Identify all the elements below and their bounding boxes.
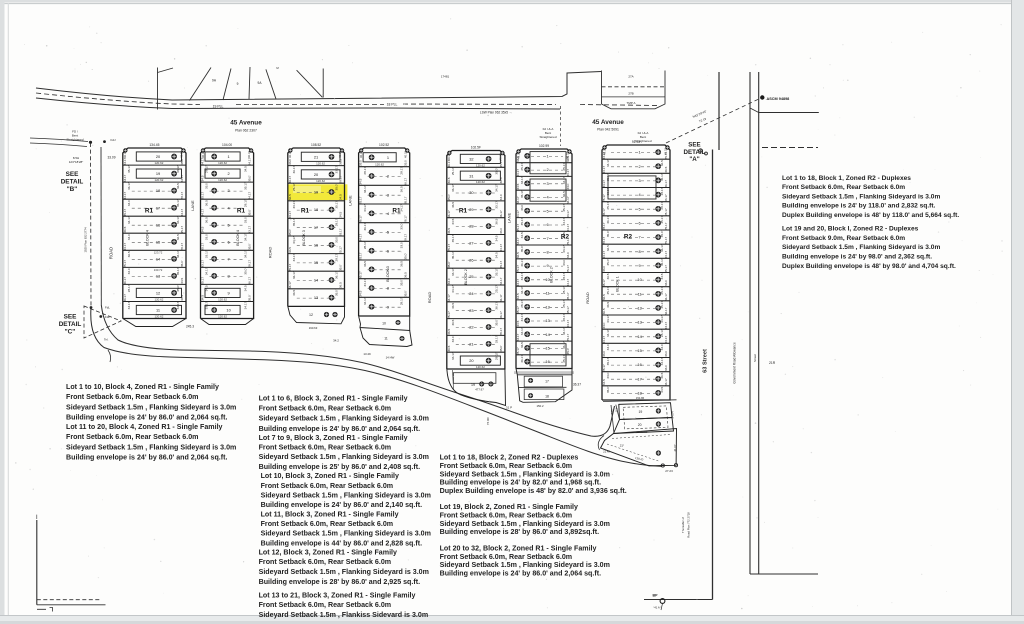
svg-text:25.17: 25.17 bbox=[201, 277, 205, 285]
svg-text:35.0′: 35.0′ bbox=[447, 194, 451, 201]
svg-text:33.0: 33.0 bbox=[606, 344, 610, 350]
svg-text:BLOCK 4: BLOCK 4 bbox=[236, 230, 240, 246]
svg-text:LANE: LANE bbox=[190, 200, 195, 211]
svg-text:21R: 21R bbox=[769, 361, 776, 365]
svg-text:35.17: 35.17 bbox=[602, 279, 606, 287]
svg-text:33.0: 33.0 bbox=[205, 234, 209, 240]
svg-text:33.17: 33.17 bbox=[339, 228, 343, 236]
svg-text:Sideyard Setback 1.5m , Flanki: Sideyard Setback 1.5m , Flanking Sideyar… bbox=[259, 568, 429, 576]
svg-text:6: 6 bbox=[639, 221, 641, 226]
svg-text:25.17: 25.17 bbox=[451, 167, 455, 175]
svg-text:28.17: 28.17 bbox=[180, 243, 184, 251]
svg-text:Front Setback 6.0m, Rear Setba: Front Setback 6.0m, Rear Setback 6.0m bbox=[261, 520, 393, 528]
svg-text:1920 Plan 832 2774: 1920 Plan 832 2774 bbox=[84, 227, 88, 252]
svg-text:Tel.: Tel. bbox=[104, 338, 109, 342]
svg-text:LANE: LANE bbox=[507, 212, 512, 223]
svg-text:1: 1 bbox=[639, 150, 641, 155]
svg-text:R1: R1 bbox=[459, 208, 468, 215]
svg-text:36.5: 36.5 bbox=[404, 272, 408, 278]
svg-text:34.84: 34.84 bbox=[671, 411, 675, 418]
svg-text:36.5: 36.5 bbox=[205, 200, 209, 206]
svg-text:15: 15 bbox=[314, 260, 318, 265]
svg-text:34.17: 34.17 bbox=[201, 157, 205, 165]
svg-text:8: 8 bbox=[639, 249, 641, 254]
svg-text:9: 9 bbox=[639, 263, 641, 268]
svg-text:FdL: FdL bbox=[105, 306, 110, 310]
svg-text:76 RF: 76 RF bbox=[486, 417, 490, 425]
svg-text:Building envelope is 24' by 86: Building envelope is 24' by 86.0' and 2,… bbox=[66, 414, 227, 422]
svg-text:123.72: 123.72 bbox=[154, 251, 163, 255]
svg-text:25.17: 25.17 bbox=[664, 236, 668, 244]
svg-text:BLOCK 3: BLOCK 3 bbox=[386, 266, 390, 282]
svg-text:123°18'28": 123°18'28" bbox=[69, 160, 84, 164]
svg-text:33.17: 33.17 bbox=[516, 196, 520, 204]
svg-text:34.5: 34.5 bbox=[516, 320, 520, 326]
svg-text:18: 18 bbox=[156, 188, 160, 193]
svg-text:34.5: 34.5 bbox=[243, 285, 247, 291]
svg-text:36.5: 36.5 bbox=[400, 261, 404, 267]
svg-text:34.17: 34.17 bbox=[127, 216, 131, 224]
svg-text:25.17: 25.17 bbox=[359, 252, 363, 260]
svg-text:Sideyard Setback 1.5m , Flanki: Sideyard Setback 1.5m , Flanking Sideyar… bbox=[440, 470, 610, 478]
svg-text:33.0: 33.0 bbox=[606, 372, 610, 378]
svg-text:33.17: 33.17 bbox=[520, 176, 524, 184]
svg-text:34.5: 34.5 bbox=[201, 175, 205, 181]
svg-text:6: 6 bbox=[547, 222, 549, 227]
svg-text:3: 3 bbox=[547, 181, 549, 186]
svg-text:120.62: 120.62 bbox=[218, 161, 227, 165]
svg-text:33.0: 33.0 bbox=[451, 336, 455, 342]
svg-text:35.0′: 35.0′ bbox=[248, 294, 252, 301]
svg-text:17: 17 bbox=[637, 376, 641, 381]
svg-text:35.17: 35.17 bbox=[516, 224, 520, 232]
svg-text:35.0′: 35.0′ bbox=[404, 290, 408, 297]
svg-text:28.17: 28.17 bbox=[404, 234, 408, 242]
svg-text:35.0′: 35.0′ bbox=[520, 245, 524, 252]
svg-text:Building envelope is 24' by 11: Building envelope is 24' by 118.0' and 2… bbox=[782, 203, 936, 210]
svg-text:1: 1 bbox=[387, 155, 389, 160]
svg-text:35.0′: 35.0′ bbox=[606, 230, 610, 237]
svg-text:36.5: 36.5 bbox=[292, 290, 296, 296]
svg-text:40.32: 40.32 bbox=[123, 150, 127, 158]
svg-text:40.32: 40.32 bbox=[447, 153, 451, 161]
svg-text:41.07: 41.07 bbox=[673, 444, 677, 451]
svg-text:18: 18 bbox=[314, 207, 318, 212]
svg-text:34.5: 34.5 bbox=[359, 290, 363, 296]
svg-text:36.17: 36.17 bbox=[359, 215, 363, 223]
svg-text:34.5: 34.5 bbox=[201, 226, 205, 232]
svg-text:33.17: 33.17 bbox=[180, 208, 184, 216]
svg-text:33.17: 33.17 bbox=[495, 201, 499, 209]
svg-text:34.17: 34.17 bbox=[243, 250, 247, 258]
svg-text:34.17: 34.17 bbox=[606, 315, 610, 323]
svg-text:Sideyard Setback 1.5m , Flanki: Sideyard Setback 1.5m , Flanking Sideyar… bbox=[259, 415, 429, 423]
svg-text:33.0: 33.0 bbox=[566, 183, 570, 189]
svg-text:Front Setback 6.0m, Rear Setba: Front Setback 6.0m, Rear Setback 6.0m bbox=[440, 553, 572, 561]
svg-text:33.0: 33.0 bbox=[602, 266, 606, 272]
svg-text:33.17: 33.17 bbox=[205, 250, 209, 258]
svg-text:"A": "A" bbox=[689, 156, 699, 163]
svg-text:19: 19 bbox=[314, 190, 318, 195]
svg-text:Sideyard Setback 1.5m , Flanki: Sideyard Setback 1.5m , Flanking Sideyar… bbox=[261, 491, 431, 499]
svg-text:R2: R2 bbox=[561, 234, 570, 241]
svg-text:28.17: 28.17 bbox=[664, 208, 668, 216]
svg-text:33.0: 33.0 bbox=[243, 217, 247, 223]
svg-text:120.62: 120.62 bbox=[476, 365, 485, 369]
svg-text:Building envelope is 28' by 86: Building envelope is 28' by 86.0' and 3,… bbox=[440, 528, 600, 536]
svg-text:35.0′: 35.0′ bbox=[334, 289, 338, 296]
svg-text:104.00: 104.00 bbox=[222, 143, 232, 147]
svg-text:35.17: 35.17 bbox=[127, 165, 131, 173]
svg-text:2: 2 bbox=[547, 167, 549, 172]
svg-text:°41 A°: °41 A° bbox=[653, 606, 660, 610]
svg-text:10: 10 bbox=[382, 322, 386, 326]
svg-text:"B": "B" bbox=[67, 186, 78, 193]
svg-text:35.0′: 35.0′ bbox=[566, 347, 570, 354]
svg-text:25.17: 25.17 bbox=[606, 202, 610, 210]
svg-text:34.17: 34.17 bbox=[499, 277, 503, 285]
svg-text:Lot 20 to 32, Block 2, Zoned R: Lot 20 to 32, Block 2, Zoned R1 - Single… bbox=[440, 545, 597, 553]
svg-text:36.5: 36.5 bbox=[664, 166, 668, 172]
svg-text:35.17: 35.17 bbox=[606, 357, 610, 365]
svg-text:33.0: 33.0 bbox=[520, 205, 524, 211]
svg-text:36.5: 36.5 bbox=[288, 194, 292, 200]
svg-text:35.17: 35.17 bbox=[520, 217, 524, 225]
svg-text:40.32: 40.32 bbox=[359, 150, 363, 158]
svg-text:16: 16 bbox=[156, 222, 160, 227]
svg-text:Lot 11 to 20, Block 4, Zoned R: Lot 11 to 20, Block 4, Zoned R1 - Single… bbox=[66, 423, 223, 431]
svg-text:36.5: 36.5 bbox=[447, 345, 451, 351]
svg-text:13.49: 13.49 bbox=[363, 352, 371, 356]
svg-text:33.17: 33.17 bbox=[566, 196, 570, 204]
svg-text:36.17: 36.17 bbox=[664, 307, 668, 315]
svg-text:36.17: 36.17 bbox=[520, 355, 524, 363]
svg-text:120.62: 120.62 bbox=[476, 180, 485, 184]
svg-text:28.17: 28.17 bbox=[602, 364, 606, 372]
svg-text:34.5: 34.5 bbox=[339, 194, 343, 200]
svg-text:36.17: 36.17 bbox=[495, 302, 499, 310]
svg-text:Government Road Allowance: Government Road Allowance bbox=[733, 342, 737, 384]
svg-text:120.62: 120.62 bbox=[154, 178, 163, 182]
svg-text:7: 7 bbox=[639, 235, 641, 240]
svg-text:18: 18 bbox=[637, 391, 641, 396]
svg-text:33.17: 33.17 bbox=[562, 245, 566, 253]
svg-text:25.17: 25.17 bbox=[566, 333, 570, 341]
svg-text:33.17: 33.17 bbox=[566, 320, 570, 328]
svg-text:R1: R1 bbox=[301, 208, 310, 215]
svg-text:36.17: 36.17 bbox=[664, 293, 668, 301]
svg-text:120.62: 120.62 bbox=[154, 161, 163, 165]
svg-text:28.17: 28.17 bbox=[363, 167, 367, 175]
svg-text:35.17: 35.17 bbox=[176, 267, 180, 275]
svg-text:36.5: 36.5 bbox=[447, 177, 451, 183]
svg-text:25: 25 bbox=[469, 274, 473, 279]
svg-text:"C": "C" bbox=[65, 329, 76, 336]
svg-text:SEE: SEE bbox=[64, 314, 78, 321]
svg-text:45 Avenue: 45 Avenue bbox=[230, 120, 262, 127]
svg-text:Street: Street bbox=[753, 354, 757, 362]
svg-text:36.37: 36.37 bbox=[573, 383, 581, 387]
svg-text:28.17: 28.17 bbox=[180, 191, 184, 199]
svg-text:33.17: 33.17 bbox=[176, 216, 180, 224]
svg-text:36.5: 36.5 bbox=[176, 234, 180, 240]
svg-text:5: 5 bbox=[547, 208, 549, 213]
svg-text:33.17: 33.17 bbox=[516, 333, 520, 341]
svg-text:36.5: 36.5 bbox=[520, 342, 524, 348]
svg-text:34.17: 34.17 bbox=[248, 191, 252, 199]
svg-text:35.0′: 35.0′ bbox=[180, 260, 184, 267]
svg-text:Straightened: Straightened bbox=[66, 138, 83, 142]
svg-text:133.72: 133.72 bbox=[154, 268, 163, 272]
svg-text:35.17: 35.17 bbox=[602, 208, 606, 216]
svg-text:LSW Plan 962 35x5 →: LSW Plan 962 35x5 → bbox=[480, 111, 512, 115]
svg-text:Front Setback 6.0m, Rear Setba: Front Setback 6.0m, Rear Setback 6.0m bbox=[259, 558, 391, 566]
svg-text:91.33: 91.33 bbox=[632, 140, 640, 144]
svg-text:28.17: 28.17 bbox=[400, 167, 404, 175]
svg-text:21: 21 bbox=[314, 154, 318, 159]
svg-text:34.17: 34.17 bbox=[123, 157, 127, 165]
svg-text:28.17: 28.17 bbox=[566, 292, 570, 300]
svg-text:BLOCK 1: BLOCK 1 bbox=[616, 276, 620, 292]
svg-text:33.17: 33.17 bbox=[495, 335, 499, 343]
svg-text:17: 17 bbox=[156, 205, 160, 210]
svg-text:34.5: 34.5 bbox=[602, 379, 606, 385]
svg-text:Front Setback 6.0m, Rear Setba: Front Setback 6.0m, Rear Setback 6.0m bbox=[259, 405, 391, 413]
svg-text:36.17: 36.17 bbox=[363, 223, 367, 231]
svg-text:28.17: 28.17 bbox=[516, 347, 520, 355]
svg-text:Sideyard Setback 1.5m , Flanki: Sideyard Setback 1.5m , Flanking Sideyar… bbox=[440, 561, 610, 569]
svg-text:34.5: 34.5 bbox=[516, 183, 520, 189]
svg-text:7: 7 bbox=[547, 236, 549, 241]
svg-text:34.17: 34.17 bbox=[201, 208, 205, 216]
svg-text:36.17: 36.17 bbox=[288, 175, 292, 183]
svg-text:34.17: 34.17 bbox=[180, 174, 184, 182]
svg-text:36.5: 36.5 bbox=[562, 191, 566, 197]
svg-text:33.09: 33.09 bbox=[108, 156, 116, 160]
svg-text:40.32: 40.32 bbox=[288, 150, 292, 158]
svg-text:21.48: 21.48 bbox=[603, 449, 610, 453]
svg-text:34.17: 34.17 bbox=[363, 204, 367, 212]
svg-text:Lot 13 to 21, Block 3, Zoned R: Lot 13 to 21, Block 3, Zoned R1 - Single… bbox=[259, 591, 416, 599]
svg-text:102.99: 102.99 bbox=[539, 144, 549, 148]
svg-text:25.17: 25.17 bbox=[664, 222, 668, 230]
svg-text:36.5: 36.5 bbox=[516, 252, 520, 258]
svg-text:FdJ: FdJ bbox=[111, 138, 117, 142]
svg-text:25.17: 25.17 bbox=[495, 285, 499, 293]
svg-text:33.17: 33.17 bbox=[288, 211, 292, 219]
svg-text:36.5: 36.5 bbox=[339, 159, 343, 165]
svg-text:Sideyard Setback 1.5m , Flanki: Sideyard Setback 1.5m , Flanking Sideyar… bbox=[66, 403, 236, 411]
svg-text:33.0: 33.0 bbox=[562, 260, 566, 266]
svg-text:35.17: 35.17 bbox=[451, 251, 455, 259]
svg-text:28.17: 28.17 bbox=[127, 284, 131, 292]
svg-text:36.17: 36.17 bbox=[123, 294, 127, 302]
svg-text:Lot 11, Block 3, Zoned R1 - Si: Lot 11, Block 3, Zoned R1 - Single Famil… bbox=[261, 511, 399, 519]
svg-text:35.0′: 35.0′ bbox=[339, 264, 343, 271]
svg-text:Building envelope is 24' by 86: Building envelope is 24' by 86.0' and 2,… bbox=[259, 425, 420, 433]
svg-text:34.17: 34.17 bbox=[243, 233, 247, 241]
svg-text:33.0: 33.0 bbox=[127, 268, 131, 274]
svg-text:36.17: 36.17 bbox=[664, 180, 668, 188]
svg-text:25.17: 25.17 bbox=[123, 260, 127, 268]
svg-text:5: 5 bbox=[387, 230, 389, 235]
svg-text:11: 11 bbox=[546, 291, 550, 296]
svg-text:29: 29 bbox=[469, 207, 473, 212]
svg-text:11: 11 bbox=[156, 308, 160, 313]
svg-text:120.62: 120.62 bbox=[316, 162, 325, 166]
svg-text:25.17: 25.17 bbox=[566, 265, 570, 273]
svg-text:Lot 1 to 18, Block 1, Zoned R2: Lot 1 to 18, Block 1, Zoned R2 - Duplexe… bbox=[782, 175, 911, 182]
svg-text:15: 15 bbox=[156, 239, 160, 244]
svg-text:120.62: 120.62 bbox=[218, 297, 227, 301]
svg-text:27A: 27A bbox=[628, 75, 633, 79]
svg-text:36.17: 36.17 bbox=[447, 210, 451, 218]
svg-text:18 PLL: 18 PLL bbox=[387, 102, 398, 106]
svg-text:SEE: SEE bbox=[688, 142, 700, 149]
svg-text:33.0: 33.0 bbox=[288, 159, 292, 165]
svg-text:34.17: 34.17 bbox=[359, 234, 363, 242]
svg-text:35.0′: 35.0′ bbox=[243, 268, 247, 275]
svg-text:28: 28 bbox=[469, 224, 473, 229]
svg-text:34.17: 34.17 bbox=[123, 191, 127, 199]
svg-text:35.17: 35.17 bbox=[664, 265, 668, 273]
svg-text:154.86: 154.86 bbox=[636, 396, 645, 400]
svg-text:Front Setback 6.0m, Rear Setba: Front Setback 6.0m, Rear Setback 6.0m bbox=[66, 393, 198, 401]
svg-text:Front Setback 6.0m, Rear Setba: Front Setback 6.0m, Rear Setback 6.0m bbox=[440, 512, 572, 520]
svg-text:17: 17 bbox=[314, 225, 318, 230]
svg-text:35.17: 35.17 bbox=[499, 260, 503, 268]
svg-text:Building envelope is 24' by 86: Building envelope is 24' by 86.0' and 2,… bbox=[66, 454, 227, 462]
svg-text:33.0: 33.0 bbox=[334, 237, 338, 243]
svg-text:35.17: 35.17 bbox=[359, 271, 363, 279]
svg-text:Sideyard Setback 1.5m , Flanki: Sideyard Setback 1.5m , Flanking Sideyar… bbox=[782, 244, 940, 251]
svg-text:34.17: 34.17 bbox=[562, 176, 566, 184]
svg-text:8: 8 bbox=[387, 286, 389, 291]
svg-text:33.17: 33.17 bbox=[292, 253, 296, 261]
svg-text:34.5: 34.5 bbox=[339, 212, 343, 218]
svg-text:33.17: 33.17 bbox=[516, 278, 520, 286]
svg-text:36.5: 36.5 bbox=[606, 245, 610, 251]
svg-text:25.17: 25.17 bbox=[201, 191, 205, 199]
svg-text:25.17: 25.17 bbox=[602, 194, 606, 202]
svg-text:33.17: 33.17 bbox=[566, 210, 570, 218]
svg-text:35.17: 35.17 bbox=[404, 196, 408, 204]
svg-text:34.17: 34.17 bbox=[205, 267, 209, 275]
svg-text:33.17: 33.17 bbox=[363, 185, 367, 193]
svg-text:7.35: 7.35 bbox=[611, 409, 614, 414]
svg-text:33.17: 33.17 bbox=[451, 352, 455, 360]
svg-text:7: 7 bbox=[228, 256, 230, 261]
svg-text:ROAD: ROAD bbox=[109, 247, 114, 259]
svg-text:Thereafter of: Thereafter of bbox=[681, 517, 685, 533]
svg-text:108.52: 108.52 bbox=[311, 143, 321, 147]
svg-text:34.17: 34.17 bbox=[363, 279, 367, 287]
svg-text:33.17: 33.17 bbox=[664, 378, 668, 386]
svg-text:34.2: 34.2 bbox=[333, 338, 339, 342]
svg-text:34.17: 34.17 bbox=[516, 169, 520, 177]
svg-text:Building envelope is 24' by 86: Building envelope is 24' by 86.0' and 2,… bbox=[261, 501, 422, 509]
svg-text:TMP A: TMP A bbox=[627, 101, 636, 105]
svg-text:36.5: 36.5 bbox=[495, 218, 499, 224]
svg-text:34.5: 34.5 bbox=[520, 232, 524, 238]
svg-text:Sideyard Setback 1.5m , Flanki: Sideyard Setback 1.5m , Flanking Sideyar… bbox=[259, 453, 429, 461]
svg-text:9: 9 bbox=[387, 304, 389, 309]
svg-text:33.17: 33.17 bbox=[520, 272, 524, 280]
svg-text:27: 27 bbox=[469, 241, 473, 246]
svg-text:33.0: 33.0 bbox=[205, 183, 209, 189]
svg-text:Lot 19 and 20, Block I, Zoned: Lot 19 and 20, Block I, Zoned R2 - Duple… bbox=[782, 226, 919, 233]
svg-text:36.17: 36.17 bbox=[127, 182, 131, 190]
svg-text:33.0: 33.0 bbox=[127, 200, 131, 206]
svg-text:36.5: 36.5 bbox=[363, 261, 367, 267]
svg-text:35.0′: 35.0′ bbox=[248, 175, 252, 182]
svg-text:33.0: 33.0 bbox=[400, 223, 404, 229]
svg-text:33.17: 33.17 bbox=[127, 301, 131, 309]
svg-text:36.17: 36.17 bbox=[520, 259, 524, 267]
svg-text:ROAD: ROAD bbox=[585, 292, 590, 304]
svg-text:34.17: 34.17 bbox=[516, 210, 520, 218]
svg-text:20: 20 bbox=[638, 423, 642, 427]
svg-text:BLOCK 2: BLOCK 2 bbox=[464, 269, 468, 285]
svg-text:34.17: 34.17 bbox=[602, 166, 606, 174]
svg-text:34.17: 34.17 bbox=[520, 313, 524, 321]
svg-text:11: 11 bbox=[384, 337, 388, 341]
svg-text:36.17: 36.17 bbox=[334, 271, 338, 279]
svg-text:36.5: 36.5 bbox=[176, 183, 180, 189]
svg-text:BLOCK 2: BLOCK 2 bbox=[549, 267, 553, 283]
svg-text:Road Plan 772 2718: Road Plan 772 2718 bbox=[687, 512, 691, 538]
svg-text:34.5: 34.5 bbox=[495, 235, 499, 241]
svg-text:36.17: 36.17 bbox=[451, 184, 455, 192]
svg-text:18: 18 bbox=[545, 395, 549, 399]
svg-text:3: 3 bbox=[387, 192, 389, 197]
svg-text:33.0: 33.0 bbox=[664, 280, 668, 286]
svg-text:ROAD: ROAD bbox=[427, 292, 432, 304]
svg-text:1: 1 bbox=[228, 154, 230, 159]
svg-text:134.45: 134.45 bbox=[149, 143, 159, 147]
svg-text:35.17: 35.17 bbox=[292, 218, 296, 226]
svg-text:12: 12 bbox=[637, 306, 641, 311]
svg-text:36.5: 36.5 bbox=[451, 319, 455, 325]
svg-text:28.17: 28.17 bbox=[334, 218, 338, 226]
svg-text:12: 12 bbox=[309, 313, 313, 317]
svg-text:35.17: 35.17 bbox=[499, 160, 503, 168]
svg-text:34.17: 34.17 bbox=[451, 285, 455, 293]
svg-text:40.32: 40.32 bbox=[247, 150, 251, 158]
svg-text:33.0: 33.0 bbox=[404, 160, 408, 166]
svg-text:36.5: 36.5 bbox=[451, 202, 455, 208]
svg-text:120.62: 120.62 bbox=[375, 163, 384, 167]
svg-text:36.5: 36.5 bbox=[447, 329, 451, 335]
svg-text:Building envelope is 25' by 86: Building envelope is 25' by 86.0' and 2,… bbox=[259, 463, 420, 471]
svg-text:28.17: 28.17 bbox=[363, 241, 367, 249]
svg-text:17: 17 bbox=[545, 380, 549, 384]
svg-text:120.62: 120.62 bbox=[218, 315, 227, 319]
svg-text:36.17: 36.17 bbox=[499, 294, 503, 302]
svg-text:9: 9 bbox=[228, 291, 230, 296]
svg-text:34.5: 34.5 bbox=[288, 247, 292, 253]
svg-text:36.5: 36.5 bbox=[606, 302, 610, 308]
svg-text:120.62: 120.62 bbox=[154, 315, 163, 319]
svg-text:Building envelope is 44' by 86: Building envelope is 44' by 86.0' and 2,… bbox=[261, 539, 422, 547]
svg-text:28.17: 28.17 bbox=[602, 236, 606, 244]
svg-text:33.17: 33.17 bbox=[451, 268, 455, 276]
svg-text:R1: R1 bbox=[145, 208, 154, 215]
svg-text:34.17: 34.17 bbox=[243, 301, 247, 309]
svg-text:34.17: 34.17 bbox=[566, 278, 570, 286]
svg-text:36.5: 36.5 bbox=[339, 282, 343, 288]
svg-text:33.0: 33.0 bbox=[499, 228, 503, 234]
